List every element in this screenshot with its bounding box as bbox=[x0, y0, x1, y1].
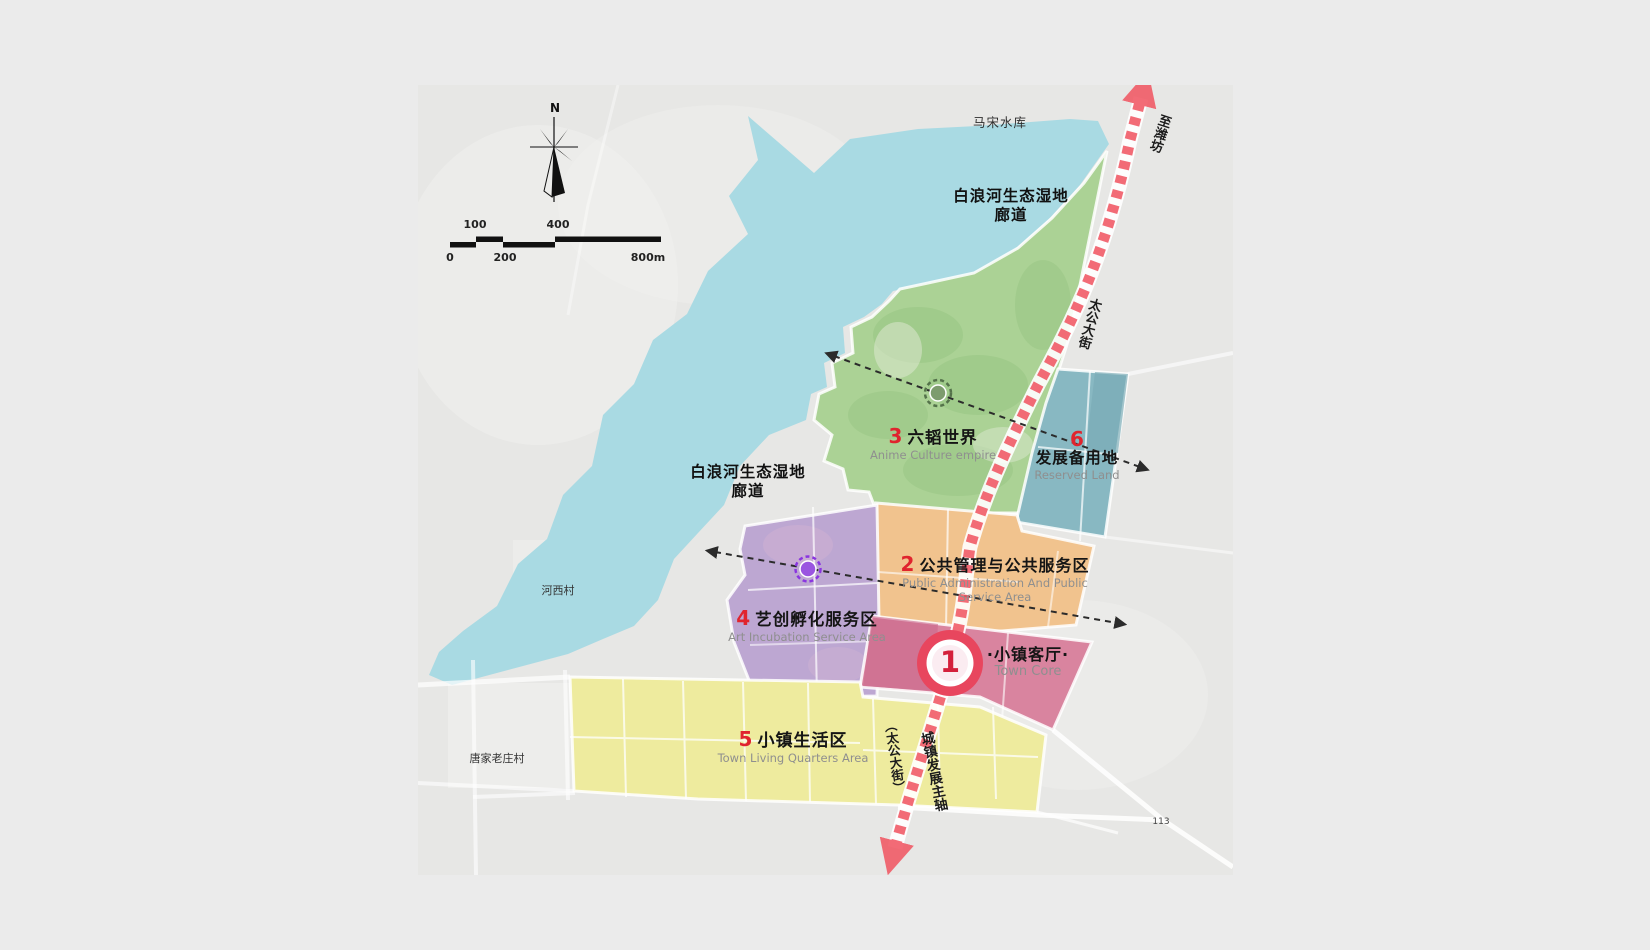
zone-2-number: 2 bbox=[901, 552, 916, 576]
zone-4-number: 4 bbox=[736, 606, 751, 630]
scale-200: 200 bbox=[485, 251, 525, 264]
zone-3-name: 六韬世界 bbox=[907, 428, 977, 447]
purple-texture bbox=[763, 525, 833, 565]
zone-3-number: 3 bbox=[889, 424, 904, 448]
compass-north-label: N bbox=[543, 101, 567, 115]
wetland-west-line1: 白浪河生态湿地 bbox=[668, 463, 828, 482]
wetland-corridor-label-north: 白浪河生态湿地 廊道 bbox=[931, 187, 1091, 225]
wetland-corridor-label-west: 白浪河生态湿地 廊道 bbox=[668, 463, 828, 501]
wetland-north-line1: 白浪河生态湿地 bbox=[931, 187, 1091, 206]
scale-400: 400 bbox=[538, 218, 578, 231]
zone-3-label: 3六韬世界 Anime Culture empire bbox=[848, 424, 1018, 463]
planning-map-canvas: N 100 400 0 200 800m 马宋水库 白浪河生态湿地 廊道 白浪河… bbox=[0, 0, 1650, 950]
zone-4-name-en: Art Incubation Service Area bbox=[712, 631, 902, 645]
village-hexi-label: 河西村 bbox=[523, 584, 593, 598]
zone-1-label: ·小镇客厅· Town Core bbox=[963, 645, 1093, 679]
zone-2-label: 2公共管理与公共服务区 Public Administration And Pu… bbox=[880, 552, 1110, 604]
zone-4-name: 艺创孵化服务区 bbox=[755, 610, 878, 629]
village-blocks-tangjia bbox=[448, 683, 570, 788]
zone-6-name: 发展备用地 bbox=[1002, 449, 1152, 468]
zone-5-name: 小镇生活区 bbox=[757, 731, 847, 751]
zone-5-name-en: Town Living Quarters Area bbox=[703, 752, 883, 766]
zone-6-name-en: Reserved Land bbox=[1002, 469, 1152, 483]
village-tangjia-label: 唐家老庄村 bbox=[447, 752, 547, 766]
scale-0: 0 bbox=[440, 251, 460, 264]
zone-6-number: 6 bbox=[1002, 429, 1152, 449]
green-texture-light bbox=[874, 322, 922, 378]
zone-1-name-en: Town Core bbox=[963, 665, 1093, 679]
zone-2-name-en: Public Administration And Public Service… bbox=[880, 577, 1110, 604]
zone-3-name-en: Anime Culture empire bbox=[848, 449, 1018, 463]
reservoir-label: 马宋水库 bbox=[950, 115, 1050, 131]
zone-5-number: 5 bbox=[739, 727, 754, 751]
zone-1-name: ·小镇客厅· bbox=[963, 645, 1093, 664]
wetland-north-line2: 廊道 bbox=[931, 206, 1091, 225]
scale-800m: 800m bbox=[623, 251, 673, 264]
planning-map: N 100 400 0 200 800m 马宋水库 白浪河生态湿地 廊道 白浪河… bbox=[418, 85, 1233, 875]
zone-5-label: 5小镇生活区 Town Living Quarters Area bbox=[703, 727, 883, 766]
zone-4-label: 4艺创孵化服务区 Art Incubation Service Area bbox=[712, 606, 902, 645]
scale-100: 100 bbox=[455, 218, 495, 231]
road-113-label: 113 bbox=[1148, 817, 1174, 828]
zone-2-name: 公共管理与公共服务区 bbox=[919, 556, 1089, 575]
zone-6-label: 6 发展备用地 Reserved Land bbox=[1002, 429, 1152, 482]
wetland-west-line2: 廊道 bbox=[668, 482, 828, 501]
